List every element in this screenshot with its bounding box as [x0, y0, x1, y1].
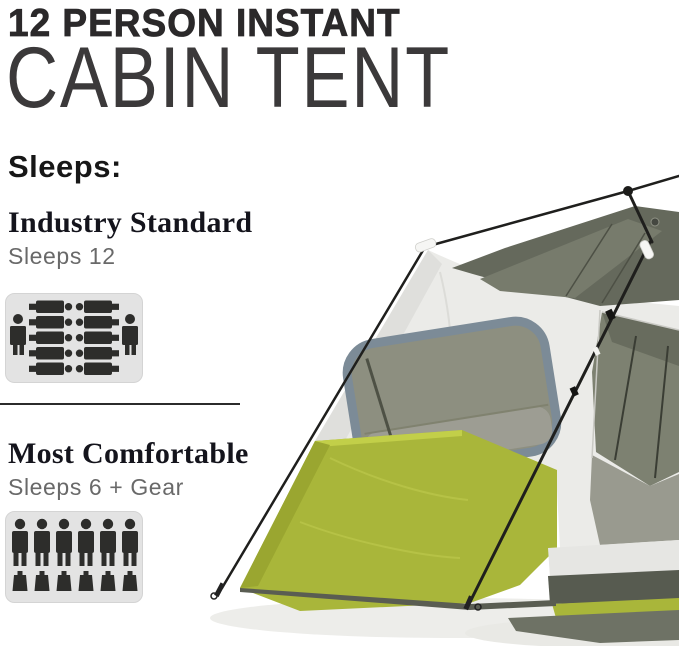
most-comfortable-subtitle: Sleeps 6 + Gear — [8, 474, 184, 501]
most-comfortable-title: Most Comfortable — [8, 437, 249, 471]
industry-standard-title: Industry Standard — [8, 206, 252, 240]
tent-stake-left — [211, 582, 225, 599]
product-infographic: 12 PERSON INSTANT CABIN TENT Sleeps: Ind… — [0, 0, 679, 646]
sleeps-6-gear-icon — [5, 511, 143, 603]
pole-grip-left — [414, 237, 437, 253]
sleeps-12-occupancy-icon — [5, 293, 143, 383]
section-divider — [0, 403, 240, 405]
sleeps-heading: Sleeps: — [8, 149, 122, 185]
title-line-2: CABIN TENT — [6, 33, 451, 123]
pole-hub — [623, 186, 633, 196]
roof-grommet — [651, 218, 659, 226]
industry-standard-subtitle: Sleeps 12 — [8, 243, 116, 270]
